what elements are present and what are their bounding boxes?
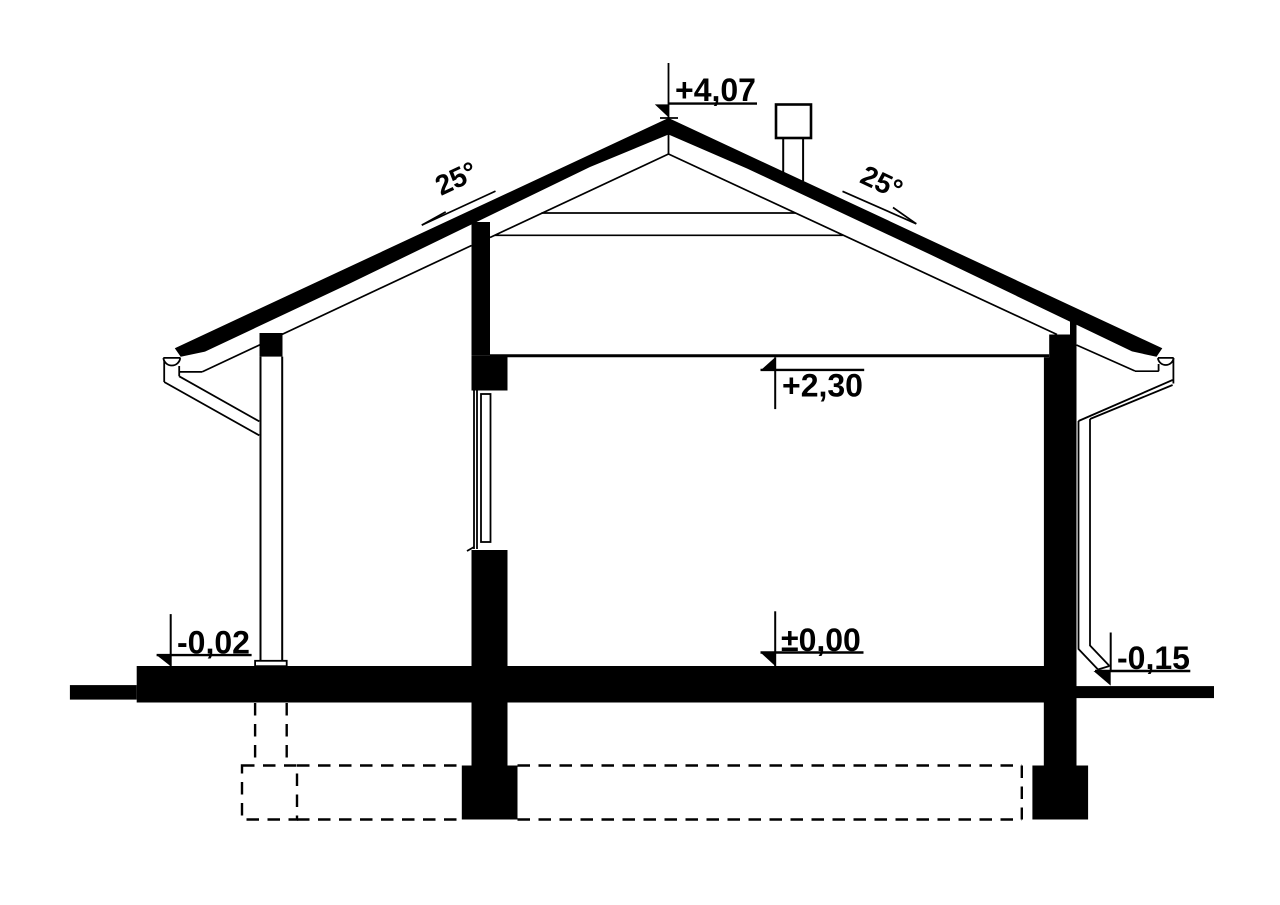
svg-text:+4,07: +4,07	[675, 72, 756, 108]
svg-text:+2,30: +2,30	[782, 368, 863, 404]
svg-text:-0,02: -0,02	[177, 625, 250, 661]
svg-text:±0,00: ±0,00	[781, 622, 861, 658]
svg-text:-0,15: -0,15	[1117, 640, 1190, 676]
